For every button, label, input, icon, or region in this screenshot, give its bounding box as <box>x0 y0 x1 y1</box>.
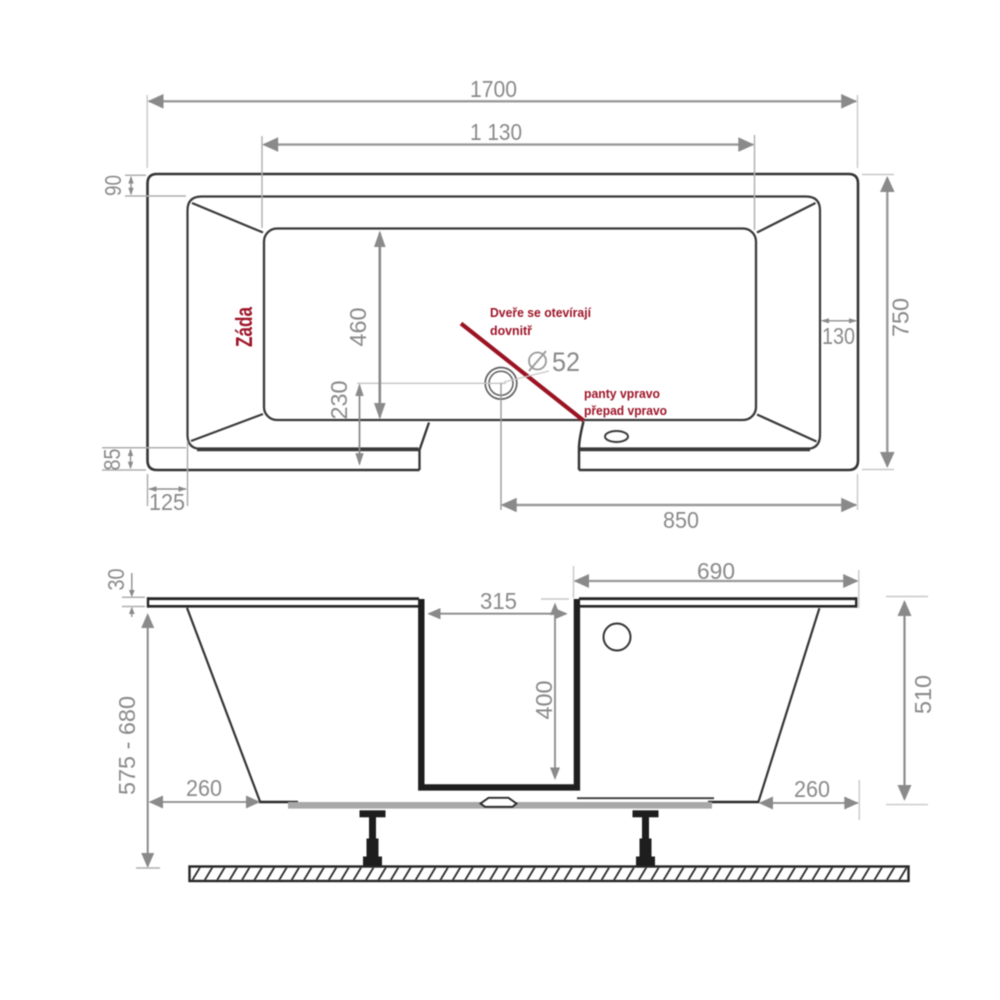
svg-text:30: 30 <box>103 569 129 591</box>
svg-text:1 130: 1 130 <box>470 119 522 145</box>
svg-text:125: 125 <box>149 489 185 515</box>
svg-text:850: 850 <box>663 507 699 533</box>
svg-text:750: 750 <box>888 298 914 337</box>
svg-text:130: 130 <box>822 323 855 349</box>
svg-text:1700: 1700 <box>470 76 517 102</box>
svg-text:Dveře se otevírají: Dveře se otevírají <box>490 306 592 320</box>
svg-text:230: 230 <box>326 381 352 420</box>
svg-text:460: 460 <box>345 308 371 347</box>
svg-text:260: 260 <box>794 776 830 802</box>
svg-text:přepad vpravo: přepad vpravo <box>584 404 667 418</box>
svg-text:400: 400 <box>531 681 557 720</box>
svg-text:690: 690 <box>697 558 735 584</box>
svg-text:260: 260 <box>186 775 222 801</box>
svg-text:510: 510 <box>910 675 936 714</box>
svg-text:panty vpravo: panty vpravo <box>584 387 660 401</box>
svg-text:85: 85 <box>99 449 125 471</box>
svg-text:Záda: Záda <box>231 307 257 347</box>
svg-text:dovnitř: dovnitř <box>490 324 532 338</box>
svg-text:575 - 680: 575 - 680 <box>114 696 140 795</box>
svg-text:52: 52 <box>552 347 580 377</box>
svg-text:315: 315 <box>480 588 517 614</box>
svg-text:90: 90 <box>100 175 126 196</box>
